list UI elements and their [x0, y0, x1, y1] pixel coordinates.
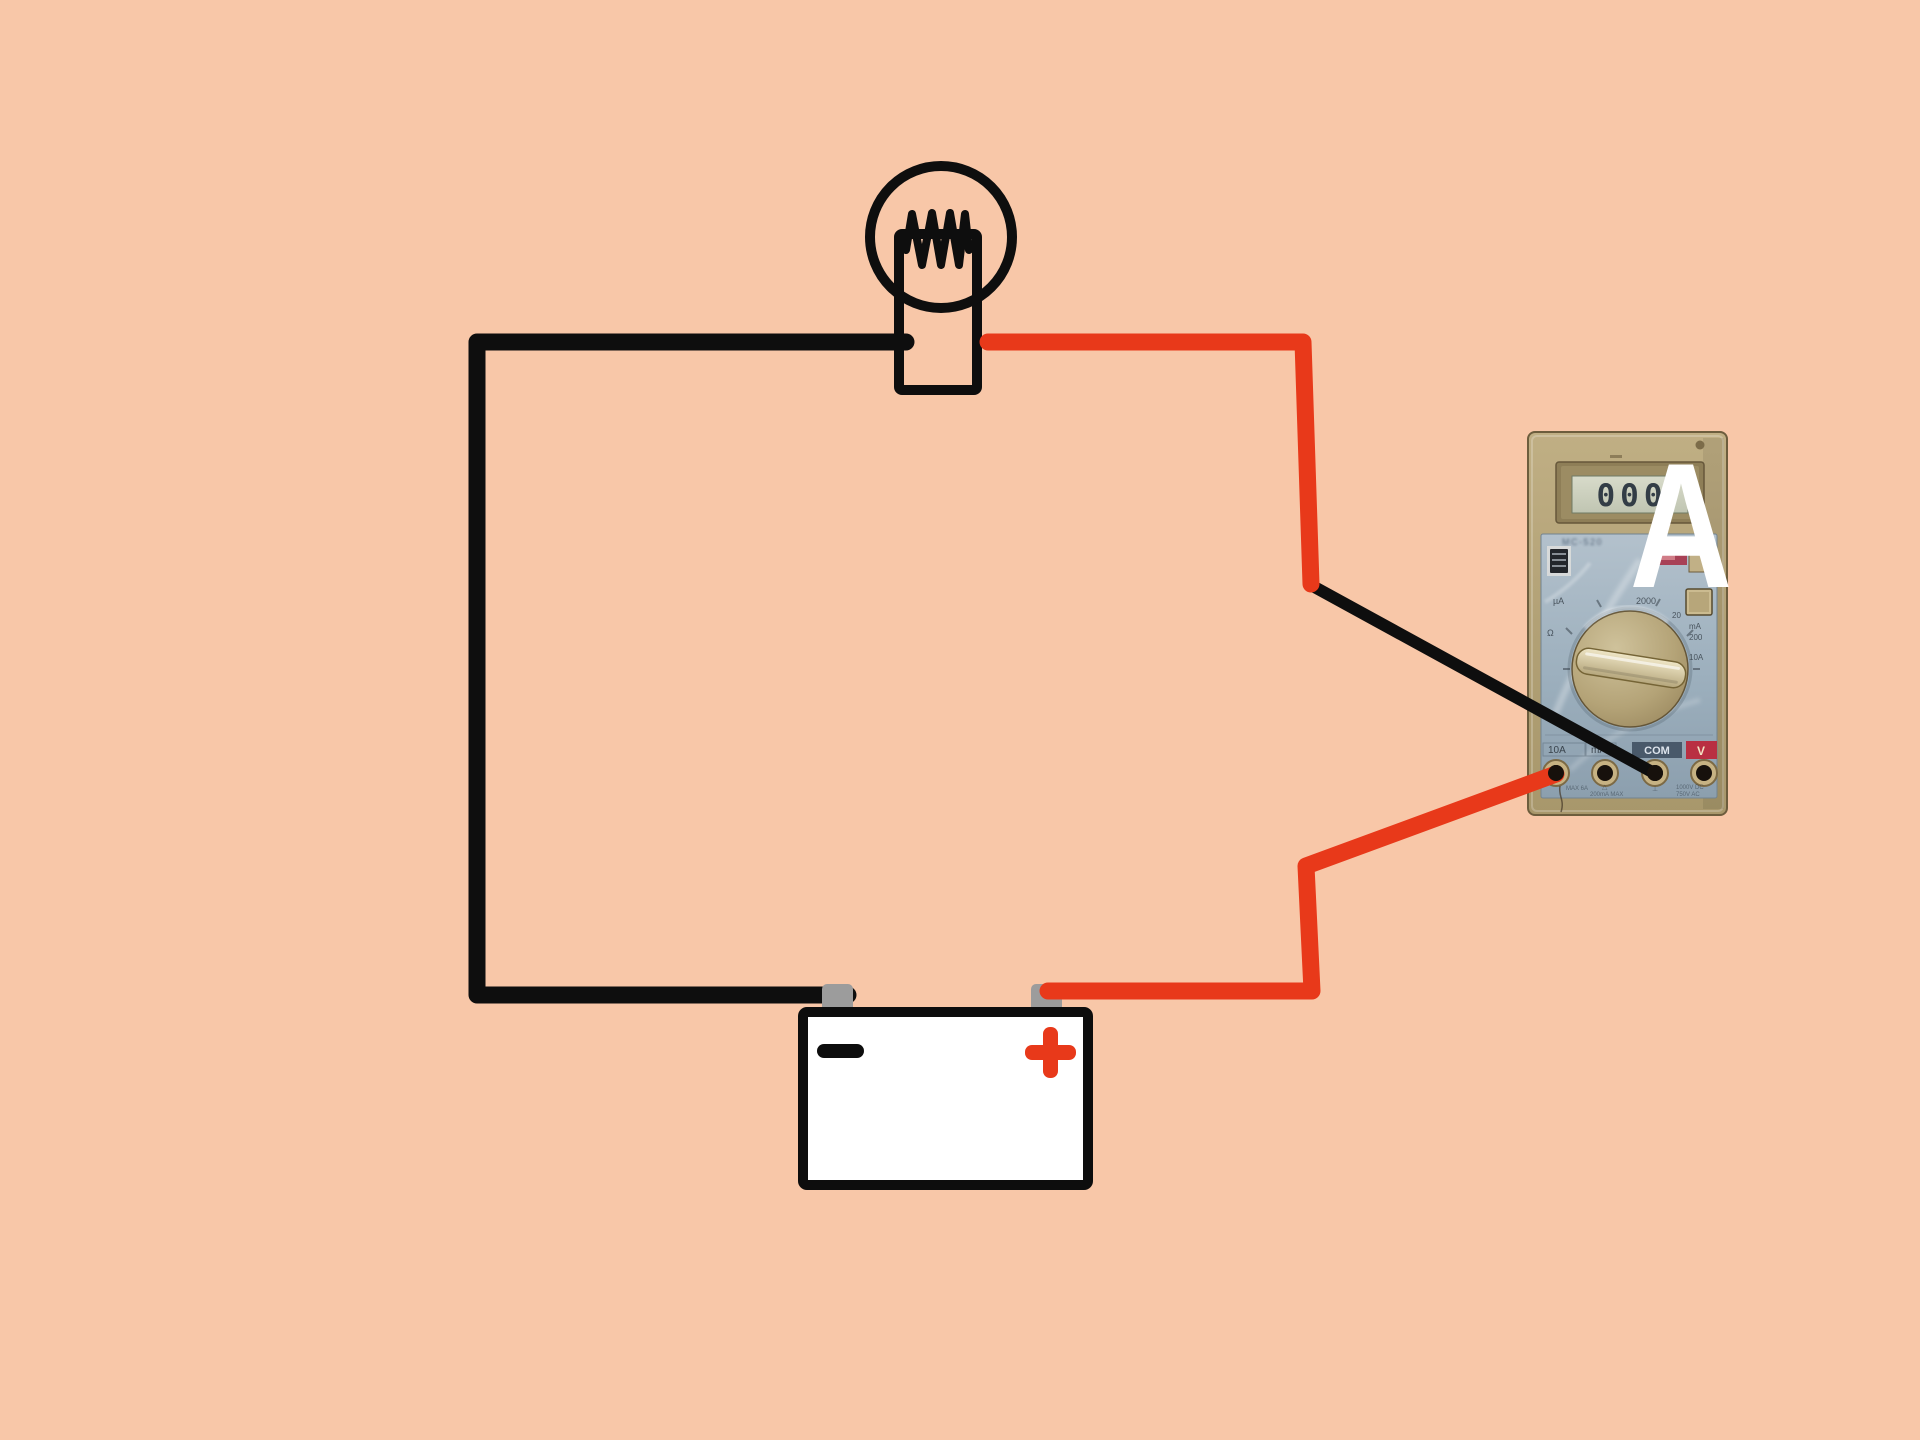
label-ua: µA [1553, 596, 1564, 606]
jack-v [1691, 760, 1717, 786]
buzzer-grille-icon [1547, 546, 1571, 576]
battery-minus-symbol [817, 1044, 864, 1058]
fine-print-1000v: 1000V DC [1676, 785, 1704, 791]
label-200: 200 [1689, 633, 1703, 642]
label-ohm: Ω [1547, 628, 1554, 638]
jack-label-com: COM [1644, 745, 1670, 757]
jack-10a-hole [1548, 765, 1564, 781]
jack-ma [1592, 760, 1618, 786]
jack-com-hole [1647, 765, 1663, 781]
circuit-diagram: 000 MC-520 [0, 0, 1920, 1440]
ammeter-letter-overlay: A [1630, 427, 1733, 626]
jack-label-v: V [1697, 744, 1705, 758]
fine-print-max6a: MAX 6A [1566, 786, 1588, 792]
case-notch [1610, 455, 1622, 458]
fine-print-750v: 750V AC [1676, 792, 1700, 798]
warning-triangle-icon: △ [1602, 784, 1608, 791]
multimeter-dial [1569, 607, 1691, 730]
fine-print-200ma: 200mA MAX [1590, 792, 1623, 798]
jack-label-10a: 10A [1548, 745, 1566, 756]
ground-icon: ⊥ [1652, 786, 1658, 793]
model-text: MC-520 [1562, 537, 1603, 547]
battery [803, 984, 1088, 1185]
diagram-canvas: 000 MC-520 [0, 0, 1920, 1440]
